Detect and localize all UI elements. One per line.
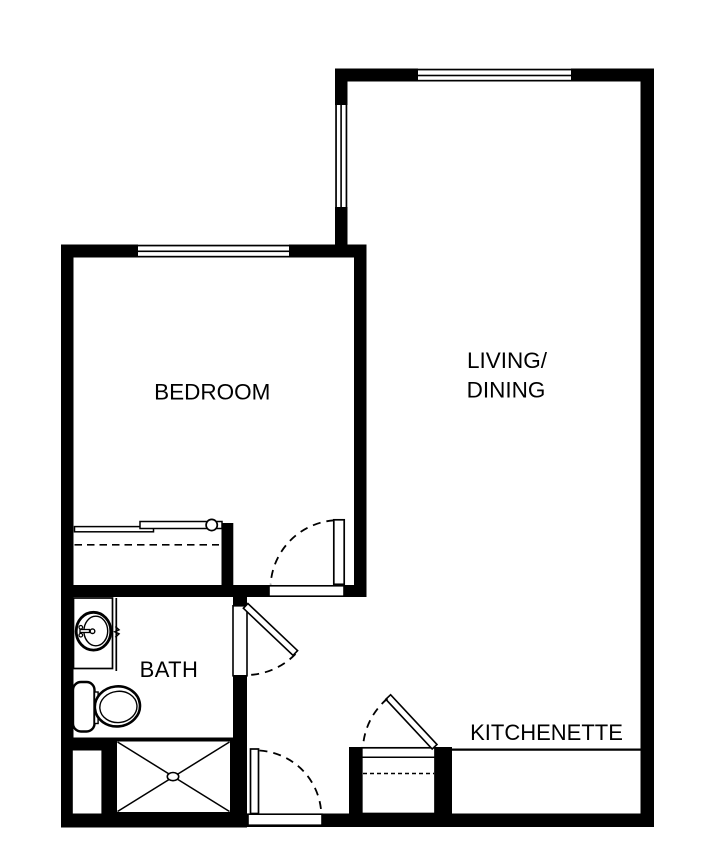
svg-text:LIVING/: LIVING/ bbox=[467, 348, 548, 373]
svg-text:DINING: DINING bbox=[467, 377, 546, 402]
svg-text:KITCHENETTE: KITCHENETTE bbox=[470, 720, 623, 745]
svg-text:BEDROOM: BEDROOM bbox=[154, 379, 270, 404]
svg-text:BATH: BATH bbox=[140, 657, 199, 682]
